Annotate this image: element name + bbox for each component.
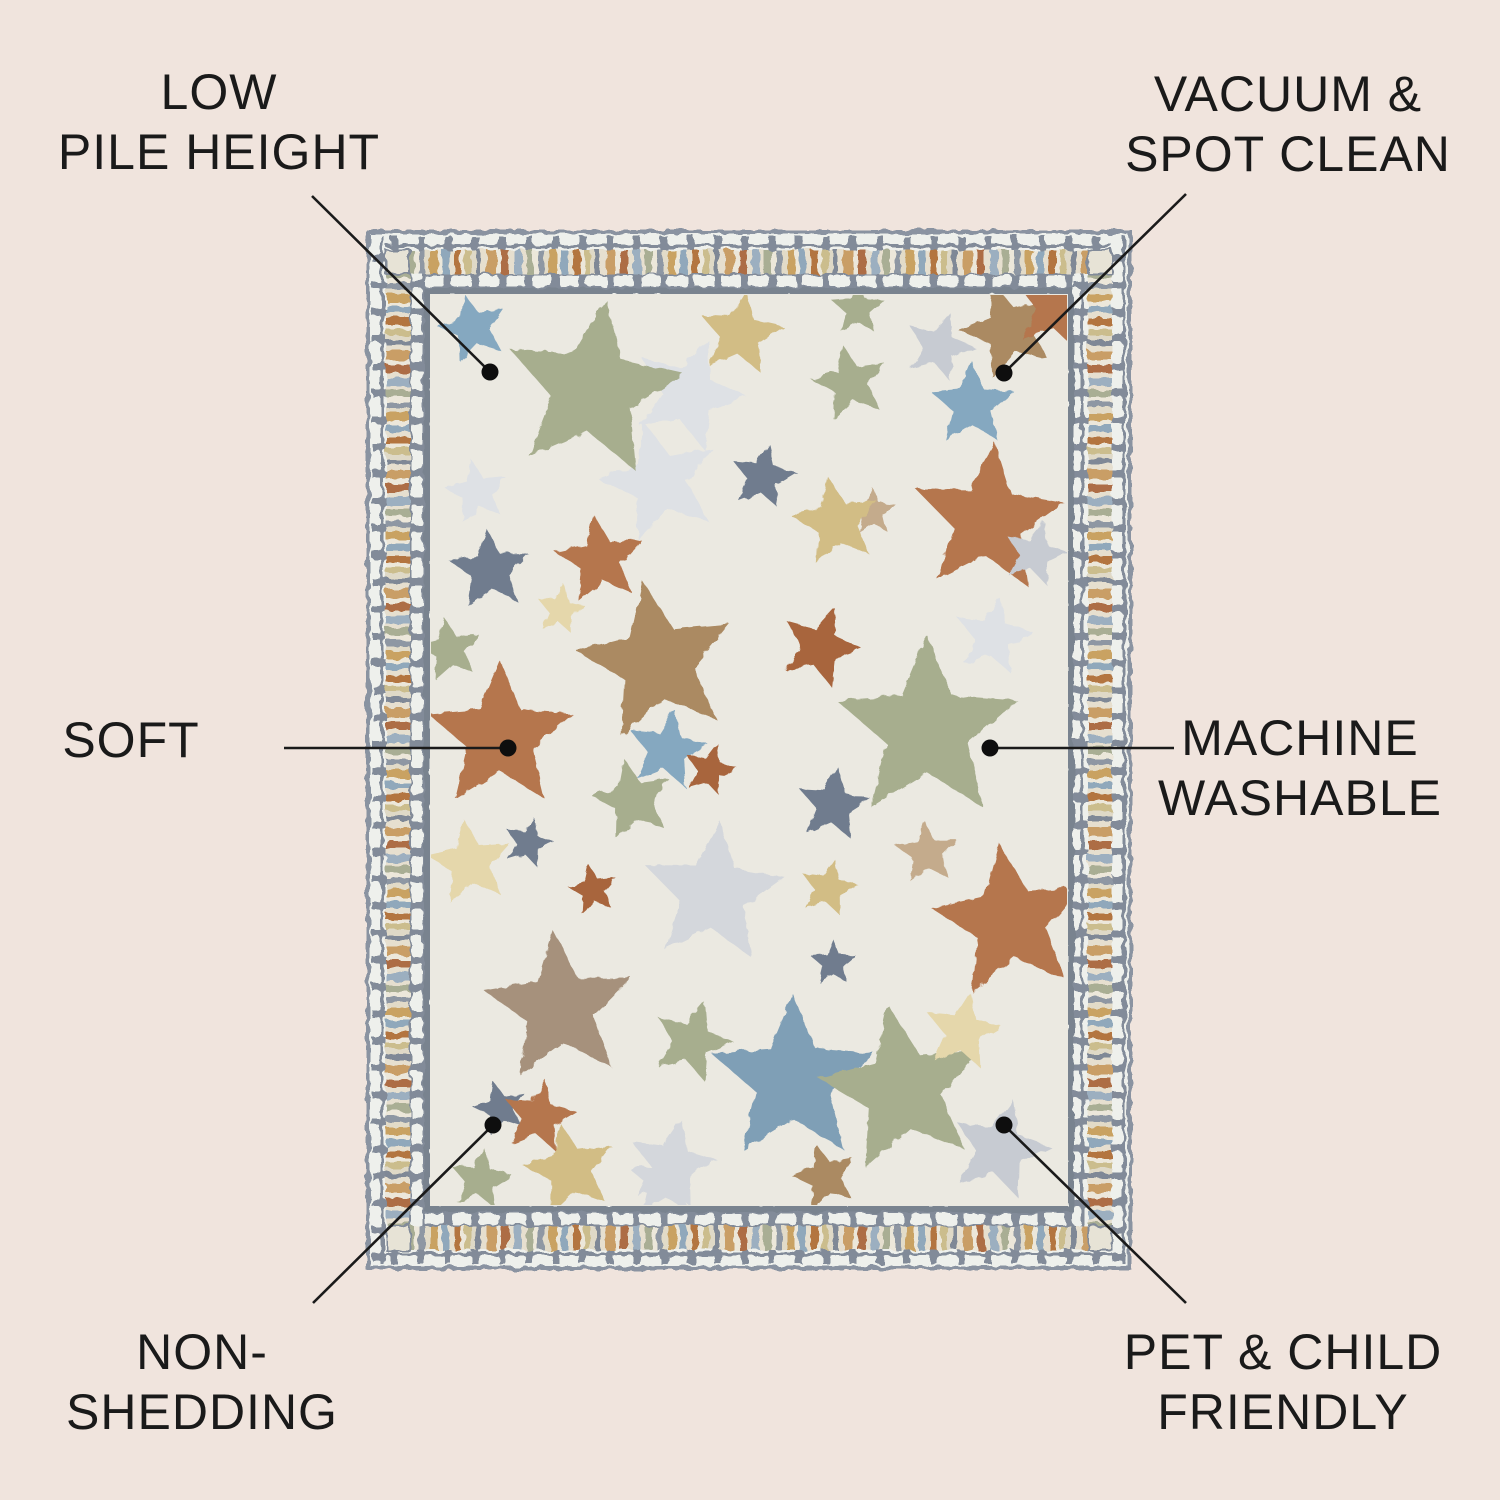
- callout-text: LOW: [19, 62, 419, 122]
- callout-dot-non-shedding: [485, 1117, 502, 1134]
- callout-label-machine-washable: MACHINE WASHABLE: [1100, 708, 1500, 828]
- callout-text: NON-: [2, 1322, 402, 1382]
- callout-text: MACHINE: [1100, 708, 1500, 768]
- product-feature-image: LOW PILE HEIGHT VACUUM & SPOT CLEAN SOFT…: [0, 0, 1500, 1500]
- callout-dot-low-pile-height: [482, 364, 499, 381]
- callout-dot-machine-washable: [982, 740, 999, 757]
- rug: [368, 232, 1130, 1268]
- callout-label-low-pile-height: LOW PILE HEIGHT: [19, 62, 419, 182]
- callout-text: VACUUM &: [1088, 64, 1488, 124]
- callout-label-soft: SOFT: [1, 710, 261, 770]
- callout-text: SOFT: [1, 710, 261, 770]
- callout-text: PET & CHILD: [1083, 1322, 1483, 1382]
- callout-text: PILE HEIGHT: [19, 122, 419, 182]
- callout-text: SHEDDING: [2, 1382, 402, 1442]
- callout-text: SPOT CLEAN: [1088, 124, 1488, 184]
- callout-label-pet-child-friendly: PET & CHILD FRIENDLY: [1083, 1322, 1483, 1442]
- callout-label-vacuum-spot-clean: VACUUM & SPOT CLEAN: [1088, 64, 1488, 184]
- callout-text: WASHABLE: [1100, 768, 1500, 828]
- callout-dot-soft: [500, 740, 517, 757]
- callout-dot-vacuum-spot-clean: [996, 365, 1013, 382]
- callout-text: FRIENDLY: [1083, 1382, 1483, 1442]
- callout-dot-pet-child-friendly: [996, 1117, 1013, 1134]
- callout-label-non-shedding: NON- SHEDDING: [2, 1322, 402, 1442]
